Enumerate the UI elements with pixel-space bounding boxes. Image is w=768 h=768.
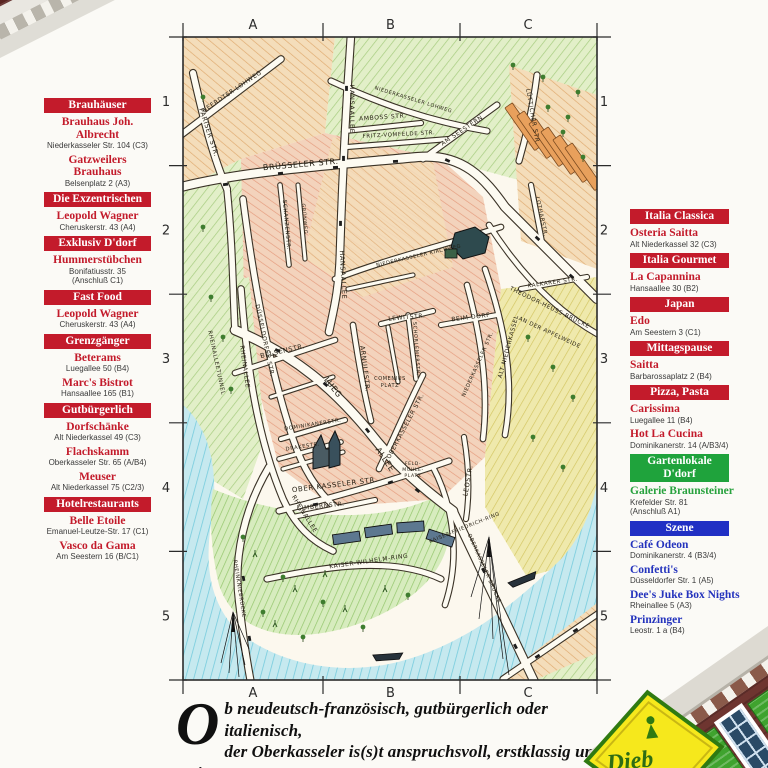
restaurant-name: Café Odeon xyxy=(630,539,762,552)
restaurant-name: La Capannina xyxy=(630,271,762,284)
restaurant-address: Am Seestern 3 (C1) xyxy=(630,328,762,338)
category-header: Mittagspause xyxy=(630,341,729,356)
restaurant-name: Carissima xyxy=(630,403,762,416)
grid-row-label: 4 xyxy=(600,481,608,496)
brick-facade xyxy=(0,0,140,17)
restaurant-address: Niederkasseler Str. 104 (C3) xyxy=(44,141,151,151)
tree-icon xyxy=(201,225,206,230)
restaurant-name: Brauhaus Joh. Albrecht xyxy=(44,116,151,141)
restaurant-address: Bonifatiusstr. 35 xyxy=(44,267,151,277)
restaurant-address: Hansaallee 30 (B2) xyxy=(630,284,762,294)
intro-paragraph: O b neudeutsch-französisch, gutbürgerlic… xyxy=(176,698,620,768)
category-header: Italia Gourmet xyxy=(630,253,729,268)
tree-icon xyxy=(511,63,516,68)
tree-icon xyxy=(566,115,571,120)
restaurant-name: Prinzinger xyxy=(630,614,762,627)
category-header: Brauhäuser xyxy=(44,98,151,113)
tree-icon xyxy=(209,295,214,300)
grid-column-label: B xyxy=(386,18,395,33)
restaurant-name: Confetti's xyxy=(630,564,762,577)
restaurant-name: Marc's Bistrot xyxy=(44,377,151,390)
grid-row-label: 1 xyxy=(600,95,608,110)
street-label: FELD- xyxy=(405,461,421,467)
street-label: PLATZ xyxy=(381,383,399,389)
tree-icon xyxy=(321,600,326,605)
grid-row-label: 5 xyxy=(600,609,608,624)
drop-cap: O xyxy=(176,701,219,747)
tree-icon xyxy=(546,105,551,110)
dentil-row xyxy=(0,0,153,44)
tree-icon xyxy=(261,610,266,615)
grid-row-label: 5 xyxy=(162,609,170,624)
restaurant-address: Oberkasseler Str. 65 (A/B4) xyxy=(44,458,151,468)
tree-icon xyxy=(406,593,411,598)
car-icon xyxy=(345,86,348,91)
grid-row-label: 3 xyxy=(162,352,170,367)
category-header: Grenzgänger xyxy=(44,334,151,349)
restaurant-name: Vasco da Gama xyxy=(44,540,151,553)
magazine-page: BrauhäuserBrauhaus Joh. AlbrechtNiederka… xyxy=(0,0,768,768)
category-header: Hotelrestaurants xyxy=(44,497,151,512)
street-label: MÜHLE- xyxy=(402,466,424,473)
street-label: COMENIUS xyxy=(374,376,406,382)
tree-icon xyxy=(581,155,586,160)
restaurant-name: Dee's Juke Box Nights xyxy=(630,589,762,602)
restaurant-address: (Anschluß C1) xyxy=(44,276,151,286)
map-art: HEERDTER LOHWEGPARISER STR.BRÜSSELER STR… xyxy=(181,35,602,683)
car-icon xyxy=(393,160,398,163)
tree-icon xyxy=(281,575,286,580)
tree-icon xyxy=(561,130,566,135)
tree-icon xyxy=(221,335,226,340)
sign-text: Dieb xyxy=(604,746,654,768)
tree-icon xyxy=(526,335,531,340)
restaurant-name: Saitta xyxy=(630,359,762,372)
restaurant-address: Am Seestern 16 (B/C1) xyxy=(44,552,151,562)
restaurant-address: Dominikanerstr. 14 (A/B3/4) xyxy=(630,441,762,451)
tree-icon xyxy=(551,365,556,370)
street-label: HANSAALLEE xyxy=(348,85,356,134)
grid-row-label: 1 xyxy=(162,95,170,110)
restaurant-name: Belle Etoile xyxy=(44,515,151,528)
residential-row xyxy=(397,521,425,533)
tree-icon xyxy=(571,395,576,400)
restaurant-address: Hansaallee 165 (B1) xyxy=(44,389,151,399)
restaurant-name: Hummerstübchen xyxy=(44,254,151,267)
grid-column-label: C xyxy=(523,18,532,33)
cornice-base xyxy=(0,0,161,58)
category-header: Szene xyxy=(630,521,729,536)
category-header: Gutbürgerlich xyxy=(44,403,151,418)
tree-icon xyxy=(201,95,206,100)
category-header: Fast Food xyxy=(44,290,151,305)
restaurant-address: Dominikanerstr. 4 (B3/4) xyxy=(630,551,762,561)
restaurant-address: Cheruskerstr. 43 (A4) xyxy=(44,320,151,330)
category-header: Italia Classica xyxy=(630,209,729,224)
restaurant-name: Gatzweilers Brauhaus xyxy=(44,154,151,179)
beer-sign: Dieb xyxy=(572,688,736,768)
restaurant-address: Emanuel-Leutze-Str. 17 (C1) xyxy=(44,527,151,537)
tree-icon xyxy=(241,535,246,540)
restaurant-name: Leopold Wagner xyxy=(44,210,151,223)
restaurant-address: Luegallee 11 (B4) xyxy=(630,416,762,426)
green-shutter xyxy=(747,686,768,768)
cornice xyxy=(0,0,147,31)
restaurant-name: Flachskamm xyxy=(44,446,151,459)
restaurant-address: Leostr. 1 a (B4) xyxy=(630,626,762,636)
restaurant-address: Luegallee 50 (B4) xyxy=(44,364,151,374)
tree-icon xyxy=(229,387,234,392)
restaurant-name: Edo xyxy=(630,315,762,328)
car-icon xyxy=(342,156,345,161)
restaurant-name: Beterams xyxy=(44,352,151,365)
grid-row-label: 2 xyxy=(162,224,170,239)
category-header: Gartenlokale D'dorf xyxy=(630,454,729,482)
hand-drawn-city-map: HEERDTER LOHWEGPARISER STR.BRÜSSELER STR… xyxy=(157,7,623,707)
tree-icon xyxy=(301,635,306,640)
grid-row-label: 2 xyxy=(600,224,608,239)
tree-icon xyxy=(531,435,536,440)
restaurant-name: Leopold Wagner xyxy=(44,308,151,321)
restaurant-address: Alt Niederkassel 49 (C3) xyxy=(44,433,151,443)
car-icon xyxy=(339,221,342,226)
car-icon xyxy=(333,166,338,169)
restaurant-list-left: BrauhäuserBrauhaus Joh. AlbrechtNiederka… xyxy=(44,94,151,562)
restaurant-address: Alt Niederkassel 75 (C2/3) xyxy=(44,483,151,493)
restaurant-address: Cheruskerstr. 43 (A4) xyxy=(44,223,151,233)
grid-row-label: 4 xyxy=(162,481,170,496)
intro-text: b neudeutsch-französisch, gutbürgerlich … xyxy=(176,699,603,768)
category-header: Japan xyxy=(630,297,729,312)
restaurant-address: Düsseldorfer Str. 1 (A5) xyxy=(630,576,762,586)
car-icon xyxy=(278,172,283,175)
tree-icon xyxy=(541,75,546,80)
restaurant-address: Alt Niederkassel 32 (C3) xyxy=(630,240,762,250)
restaurant-address: Belsenplatz 2 (A3) xyxy=(44,179,151,189)
restaurant-address: Barbarossaplatz 2 (B4) xyxy=(630,372,762,382)
grid-column-label: A xyxy=(249,18,258,33)
restaurant-address: (Anschluß A1) xyxy=(630,507,762,517)
restaurant-name: Osteria Saitta xyxy=(630,227,762,240)
restaurant-name: Hot La Cucina xyxy=(630,428,762,441)
grid-row-label: 3 xyxy=(600,352,608,367)
restaurant-name: Dorfschänke xyxy=(44,421,151,434)
tree-icon xyxy=(576,90,581,95)
category-header: Exklusiv D'dorf xyxy=(44,236,151,251)
restaurant-address: Rheinallee 5 (A3) xyxy=(630,601,762,611)
restaurant-address: Krefelder Str. 81 xyxy=(630,498,762,508)
restaurant-name: Galerie Braunsteiner xyxy=(630,485,762,498)
street-label: PLATZ xyxy=(404,473,421,479)
restaurant-list-right: Italia ClassicaOsteria SaittaAlt Niederk… xyxy=(630,205,762,636)
category-header: Die Exzentrischen xyxy=(44,192,151,207)
category-header: Pizza, Pasta xyxy=(630,385,729,400)
restaurant-name: Meuser xyxy=(44,471,151,484)
building-photo-fragment xyxy=(0,0,161,58)
tree-icon xyxy=(561,465,566,470)
map-svg: HEERDTER LOHWEGPARISER STR.BRÜSSELER STR… xyxy=(157,7,623,707)
tree-icon xyxy=(361,625,366,630)
